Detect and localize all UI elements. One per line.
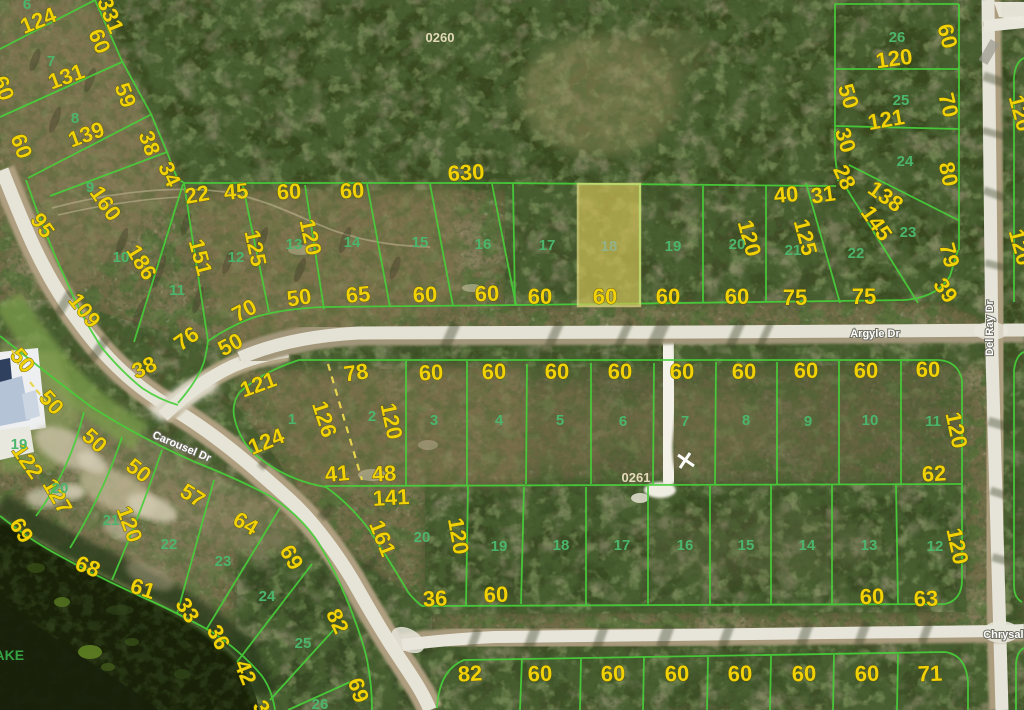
svg-text:31: 31 bbox=[809, 180, 837, 208]
svg-text:20: 20 bbox=[52, 480, 69, 497]
svg-text:19: 19 bbox=[665, 238, 682, 255]
svg-text:36: 36 bbox=[422, 585, 448, 611]
svg-text:60: 60 bbox=[474, 281, 499, 307]
svg-text:62: 62 bbox=[921, 460, 947, 486]
svg-text:80: 80 bbox=[934, 160, 964, 189]
svg-text:13: 13 bbox=[286, 236, 303, 253]
svg-text:18: 18 bbox=[601, 238, 618, 255]
svg-text:60: 60 bbox=[600, 661, 625, 687]
svg-text:63: 63 bbox=[913, 586, 938, 612]
svg-text:9: 9 bbox=[86, 179, 94, 196]
svg-text:10: 10 bbox=[862, 412, 879, 429]
svg-text:14: 14 bbox=[344, 234, 361, 251]
svg-text:12: 12 bbox=[927, 538, 944, 555]
svg-text:24: 24 bbox=[897, 153, 914, 170]
svg-text:21: 21 bbox=[103, 512, 120, 529]
svg-text:45: 45 bbox=[223, 178, 250, 205]
svg-text:4: 4 bbox=[495, 412, 504, 429]
svg-text:8: 8 bbox=[71, 110, 79, 127]
svg-text:60: 60 bbox=[794, 358, 818, 383]
svg-text:60: 60 bbox=[481, 359, 506, 385]
svg-text:5: 5 bbox=[556, 412, 564, 429]
svg-text:630: 630 bbox=[447, 159, 485, 186]
svg-text:LAKE: LAKE bbox=[0, 647, 24, 663]
svg-text:60: 60 bbox=[608, 359, 632, 384]
svg-text:120: 120 bbox=[874, 44, 914, 74]
svg-text:0261: 0261 bbox=[622, 470, 651, 485]
svg-text:60: 60 bbox=[593, 284, 617, 309]
svg-text:15: 15 bbox=[738, 537, 755, 554]
svg-text:23: 23 bbox=[900, 224, 917, 241]
svg-text:3: 3 bbox=[430, 412, 438, 429]
svg-text:11: 11 bbox=[169, 282, 185, 299]
svg-text:60: 60 bbox=[732, 359, 756, 384]
svg-text:60: 60 bbox=[276, 178, 302, 204]
svg-text:7: 7 bbox=[681, 413, 689, 430]
svg-text:82: 82 bbox=[457, 660, 483, 686]
svg-text:18: 18 bbox=[553, 537, 570, 554]
svg-text:8: 8 bbox=[742, 412, 750, 429]
svg-text:1: 1 bbox=[288, 411, 296, 428]
svg-text:19: 19 bbox=[491, 538, 508, 555]
svg-text:20: 20 bbox=[729, 236, 746, 253]
svg-text:10: 10 bbox=[113, 249, 130, 266]
svg-text:26: 26 bbox=[312, 696, 329, 710]
svg-text:25: 25 bbox=[893, 92, 910, 109]
svg-text:13: 13 bbox=[861, 537, 878, 554]
svg-text:19: 19 bbox=[11, 436, 28, 453]
svg-text:7: 7 bbox=[47, 53, 55, 70]
svg-text:Argyle Dr: Argyle Dr bbox=[850, 328, 900, 340]
svg-text:20: 20 bbox=[414, 529, 431, 546]
svg-text:15: 15 bbox=[412, 234, 429, 251]
svg-text:16: 16 bbox=[677, 537, 694, 554]
svg-text:60: 60 bbox=[854, 358, 878, 383]
svg-text:60: 60 bbox=[854, 661, 879, 687]
svg-text:6: 6 bbox=[23, 0, 31, 13]
svg-text:60: 60 bbox=[412, 282, 437, 308]
svg-text:60: 60 bbox=[527, 661, 552, 687]
svg-text:71: 71 bbox=[917, 661, 942, 687]
svg-text:6: 6 bbox=[619, 413, 627, 430]
svg-text:25: 25 bbox=[295, 635, 312, 652]
svg-text:60: 60 bbox=[916, 357, 940, 382]
svg-text:78: 78 bbox=[342, 358, 370, 386]
svg-text:40: 40 bbox=[773, 181, 800, 208]
svg-text:60: 60 bbox=[791, 661, 816, 687]
svg-text:0260: 0260 bbox=[426, 30, 455, 45]
svg-text:22: 22 bbox=[183, 180, 211, 209]
svg-text:41: 41 bbox=[324, 460, 351, 487]
svg-text:23: 23 bbox=[215, 553, 232, 570]
svg-text:65: 65 bbox=[345, 281, 372, 308]
svg-text:60: 60 bbox=[545, 359, 569, 384]
svg-text:14: 14 bbox=[799, 537, 816, 554]
svg-text:24: 24 bbox=[259, 588, 276, 605]
svg-text:141: 141 bbox=[372, 484, 410, 511]
svg-text:60: 60 bbox=[418, 359, 444, 385]
svg-text:48: 48 bbox=[371, 460, 397, 486]
svg-text:50: 50 bbox=[285, 283, 313, 311]
svg-text:60: 60 bbox=[727, 661, 752, 687]
svg-text:22: 22 bbox=[161, 536, 178, 553]
svg-text:22: 22 bbox=[848, 245, 865, 262]
svg-text:9: 9 bbox=[804, 413, 812, 430]
svg-text:16: 16 bbox=[475, 236, 492, 253]
svg-text:11: 11 bbox=[925, 413, 941, 430]
svg-text:60: 60 bbox=[664, 661, 689, 687]
svg-text:75: 75 bbox=[852, 284, 876, 309]
svg-text:75: 75 bbox=[783, 285, 807, 310]
svg-text:26: 26 bbox=[889, 29, 906, 46]
svg-text:21: 21 bbox=[785, 242, 802, 259]
svg-text:17: 17 bbox=[539, 237, 556, 254]
svg-text:2: 2 bbox=[368, 408, 376, 425]
svg-text:60: 60 bbox=[859, 584, 884, 610]
svg-text:12: 12 bbox=[228, 249, 245, 266]
svg-text:Chrysalis: Chrysalis bbox=[983, 629, 1024, 641]
svg-text:60: 60 bbox=[528, 284, 552, 309]
svg-text:60: 60 bbox=[339, 177, 365, 203]
svg-text:60: 60 bbox=[656, 284, 680, 309]
svg-text:60: 60 bbox=[725, 284, 749, 309]
svg-text:60: 60 bbox=[670, 359, 694, 384]
svg-text:Del Ray Dr: Del Ray Dr bbox=[984, 299, 996, 355]
svg-text:60: 60 bbox=[483, 582, 508, 608]
svg-text:17: 17 bbox=[614, 537, 631, 554]
